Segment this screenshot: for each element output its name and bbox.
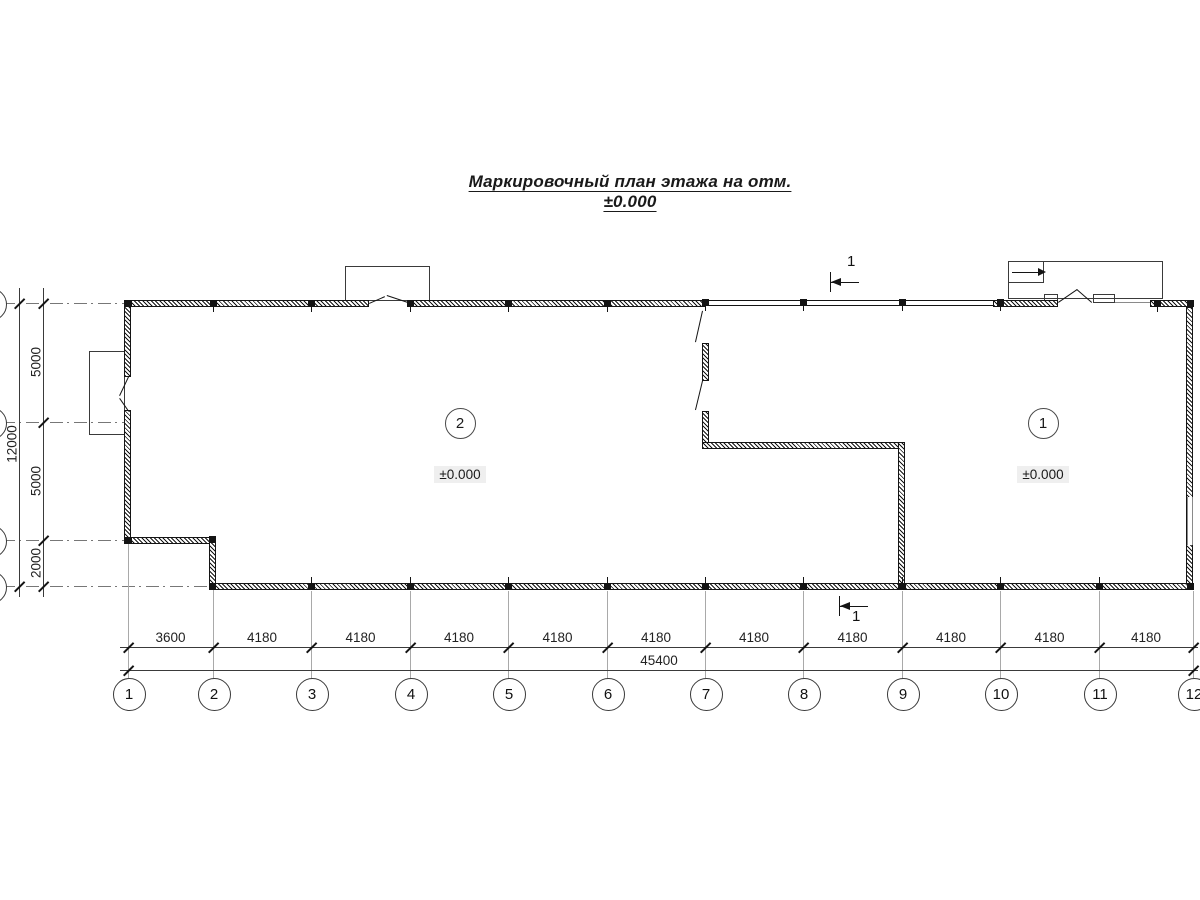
- column-extension-line: [311, 591, 312, 679]
- dim-label: 4180: [530, 630, 586, 645]
- column-extension-line: [607, 591, 608, 679]
- column-mark-tick: [803, 577, 804, 586]
- column-mark: [209, 583, 216, 590]
- column-extension-line: [1099, 591, 1100, 679]
- column-mark-tick: [902, 577, 903, 586]
- ramp-arrow-line: [1012, 272, 1040, 273]
- column-mark: [125, 537, 132, 544]
- grid-bubble-column: 4: [395, 678, 428, 711]
- column-mark: [125, 300, 132, 307]
- column-mark-tick: [705, 577, 706, 586]
- grid-bubble-column: 10: [985, 678, 1018, 711]
- column-extension-line: [705, 591, 706, 679]
- dim-label: 4180: [726, 630, 782, 645]
- ramp-arrowhead-icon: [1038, 268, 1046, 276]
- room-elevation-label: ±0.000: [1017, 466, 1068, 483]
- wall-segment: [124, 537, 216, 544]
- column-mark-tick: [508, 577, 509, 586]
- wall-segment: [898, 442, 905, 590]
- column-mark-tick: [902, 302, 903, 311]
- dim-total-label: 45400: [631, 653, 687, 668]
- dim-line: [120, 647, 1198, 648]
- section-mark-top: 1: [828, 272, 874, 316]
- dim-label: 2000: [29, 523, 44, 603]
- room-number-bubble: 2: [445, 408, 476, 439]
- column-mark-tick: [803, 302, 804, 311]
- column-mark-tick: [607, 577, 608, 586]
- column-mark-tick: [1000, 577, 1001, 586]
- column-mark-tick: [1099, 577, 1100, 586]
- column-extension-line: [1000, 591, 1001, 679]
- column-mark-tick: [213, 303, 214, 312]
- section-label: 1: [847, 253, 855, 270]
- column-mark-tick: [607, 303, 608, 312]
- threshold-line: [1115, 302, 1150, 303]
- column-mark-tick: [705, 302, 706, 311]
- door-leaf-line: [695, 311, 703, 342]
- room-tag-2: 2 ±0.000: [430, 408, 490, 484]
- dim-label: 4180: [1022, 630, 1078, 645]
- column-mark: [209, 536, 216, 543]
- grid-bubble-column: 5: [493, 678, 526, 711]
- floor-plan-canvas: Маркировочный план этажа на отм. ±0.000 …: [0, 0, 1200, 900]
- column-extension-line: [803, 591, 804, 679]
- grid-bubble-column: 9: [887, 678, 920, 711]
- wall-segment: [124, 410, 131, 544]
- column-mark-tick: [311, 577, 312, 586]
- dim-label: 3600: [143, 630, 199, 645]
- column-mark-tick: [1000, 302, 1001, 311]
- grid-bubble-column: 7: [690, 678, 723, 711]
- column-mark: [1187, 583, 1194, 590]
- grid-bubble-column: 11: [1084, 678, 1117, 711]
- dim-label: 5000: [29, 322, 44, 402]
- column-mark-tick: [1157, 303, 1158, 312]
- window-segment: [1187, 497, 1193, 545]
- section-mark-bottom: 1: [837, 596, 883, 640]
- dim-label: 4180: [628, 630, 684, 645]
- dim-label: 4180: [333, 630, 389, 645]
- wall-segment: [702, 442, 905, 449]
- grid-bubble-column: 2: [198, 678, 231, 711]
- grid-bubble-row: [0, 288, 7, 321]
- row-gridline: [2, 422, 124, 423]
- grid-bubble-column: 12: [1178, 678, 1200, 711]
- column-extension-line: [128, 542, 129, 679]
- column-extension-line: [902, 591, 903, 679]
- grid-bubble-column: 1: [113, 678, 146, 711]
- dim-total-label: 12000: [5, 404, 20, 484]
- column-mark: [1187, 300, 1194, 307]
- wall-segment: [124, 300, 131, 377]
- wall-segment: [702, 343, 709, 381]
- grid-bubble-column: 3: [296, 678, 329, 711]
- room-tag-1: 1 ±0.000: [1013, 408, 1073, 484]
- room-elevation-label: ±0.000: [434, 466, 485, 483]
- section-arrowhead-icon: [840, 602, 850, 610]
- room-number-bubble: 1: [1028, 408, 1059, 439]
- column-extension-line: [410, 591, 411, 679]
- dim-label: 5000: [29, 441, 44, 521]
- column-extension-line: [1193, 591, 1194, 679]
- wall-segment: [125, 300, 369, 307]
- column-extension-line: [508, 591, 509, 679]
- wall-segment: [411, 300, 705, 307]
- grid-bubble-row: [0, 571, 7, 604]
- column-mark-tick: [410, 303, 411, 312]
- grid-bubble-column: 6: [592, 678, 625, 711]
- dim-label: 4180: [1118, 630, 1174, 645]
- dim-label: 4180: [431, 630, 487, 645]
- section-arrowhead-icon: [831, 278, 841, 286]
- column-mark-tick: [410, 577, 411, 586]
- wall-segment: [1186, 307, 1193, 590]
- grid-bubble-column: 8: [788, 678, 821, 711]
- door-post: [1093, 294, 1115, 303]
- dim-label: 4180: [923, 630, 979, 645]
- dim-label: 4180: [234, 630, 290, 645]
- section-label: 1: [852, 608, 860, 625]
- grid-bubble-row: [0, 525, 7, 558]
- dim-line: [120, 670, 1198, 671]
- column-mark-tick: [311, 303, 312, 312]
- door-leaf-line: [695, 381, 703, 410]
- column-mark-tick: [508, 303, 509, 312]
